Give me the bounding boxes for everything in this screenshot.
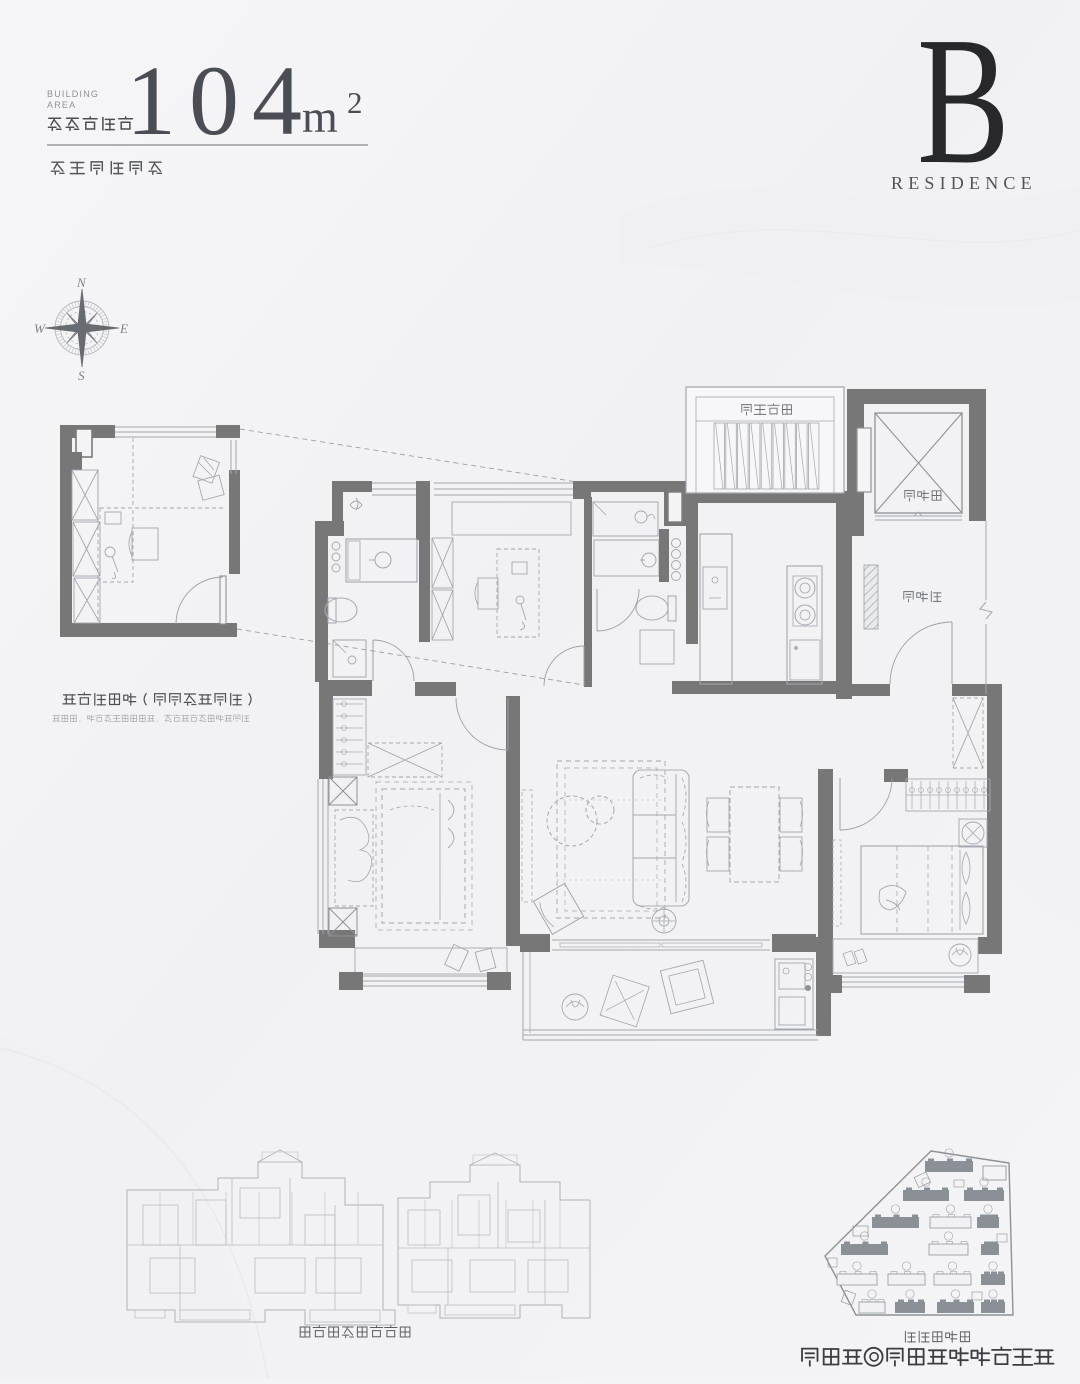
svg-text:N: N <box>76 275 87 290</box>
svg-text:104: 104 <box>126 45 315 156</box>
svg-text:m: m <box>302 91 338 142</box>
svg-text:BUILDING: BUILDING <box>47 89 99 99</box>
svg-text:RESIDENCE: RESIDENCE <box>891 173 1037 193</box>
svg-text:2: 2 <box>347 85 363 120</box>
svg-text:E: E <box>119 321 128 336</box>
svg-text:AREA: AREA <box>47 100 76 110</box>
svg-text:S: S <box>78 368 85 383</box>
svg-text:W: W <box>34 321 46 336</box>
